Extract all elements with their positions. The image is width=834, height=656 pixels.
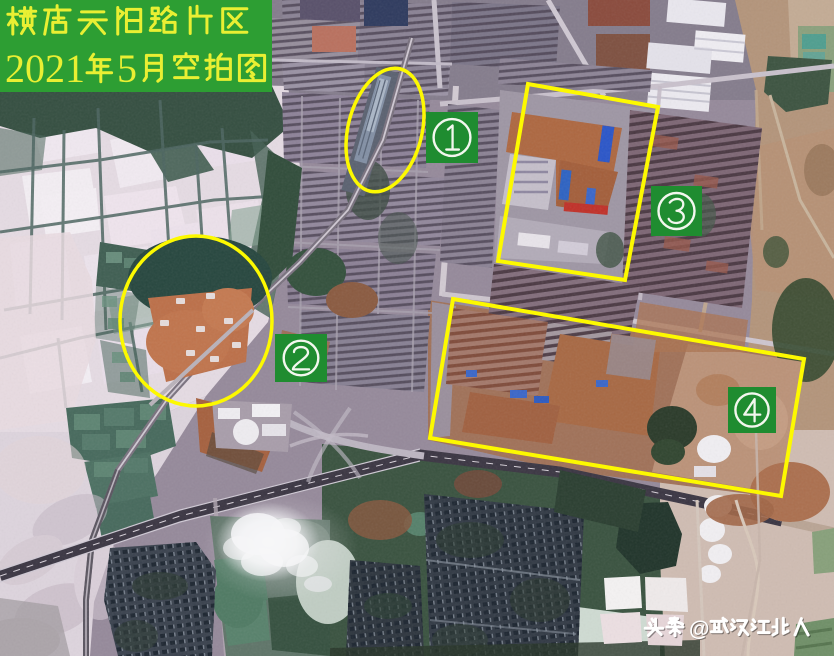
svg-text:@: @ [689, 618, 709, 641]
svg-text:5: 5 [117, 46, 137, 91]
svg-text:2021: 2021 [5, 46, 85, 91]
